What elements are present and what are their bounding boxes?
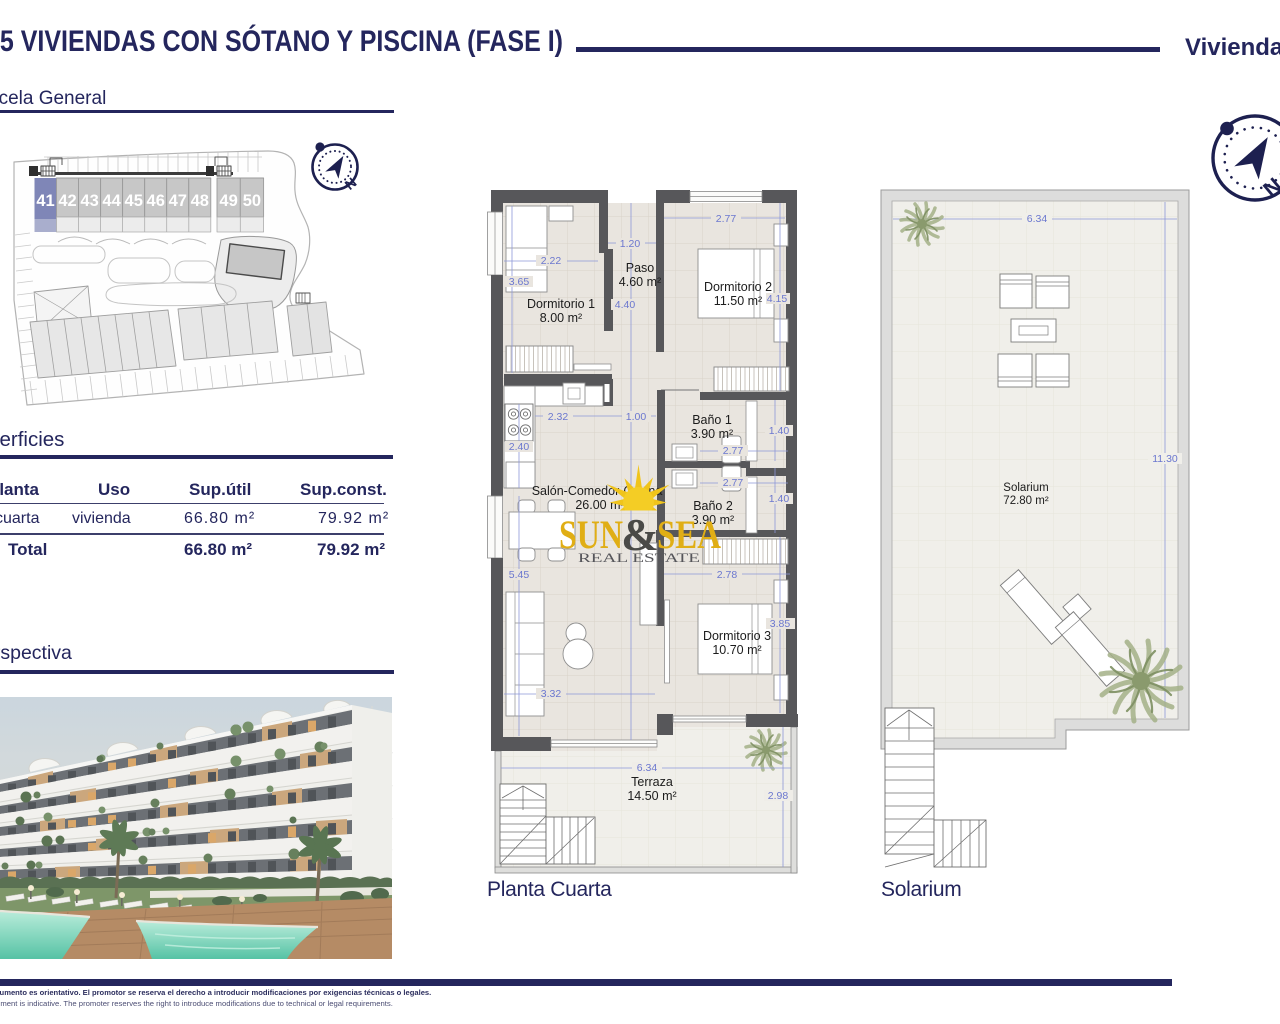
svg-text:44: 44 [102,192,121,210]
svg-text:42: 42 [58,192,76,210]
svg-text:45: 45 [125,192,143,210]
svg-text:2.40: 2.40 [509,441,530,453]
svg-text:2.98: 2.98 [768,790,789,802]
svg-text:Dormitorio 3: Dormitorio 3 [703,629,771,643]
svg-text:3.32: 3.32 [541,688,562,700]
svg-text:1.20: 1.20 [620,238,641,250]
svg-text:8.00 m²: 8.00 m² [540,311,582,325]
svg-text:10.70 m²: 10.70 m² [712,643,761,657]
svg-text:14.50 m²: 14.50 m² [627,789,676,803]
svg-text:47: 47 [169,192,187,210]
svg-text:2.77: 2.77 [723,477,744,489]
svg-text:2.77: 2.77 [723,445,744,457]
svg-text:Dormitorio 2: Dormitorio 2 [704,280,772,294]
svg-text:3.85: 3.85 [770,618,791,630]
svg-text:3.65: 3.65 [509,276,530,288]
svg-text:2.78: 2.78 [717,569,738,581]
svg-text:41: 41 [36,192,54,210]
svg-text:1.00: 1.00 [626,411,647,423]
svg-text:Baño 2: Baño 2 [693,499,733,513]
svg-text:43: 43 [80,192,98,210]
svg-text:6.34: 6.34 [637,762,658,774]
svg-text:6.34: 6.34 [1027,213,1048,225]
svg-text:4.60 m²: 4.60 m² [619,275,661,289]
svg-text:3.90 m²: 3.90 m² [691,427,733,441]
svg-text:1.40: 1.40 [769,425,790,437]
svg-text:11.30: 11.30 [1152,453,1178,465]
svg-text:Baño 1: Baño 1 [692,413,732,427]
svg-text:49: 49 [219,192,237,210]
svg-text:48: 48 [191,192,209,210]
svg-text:72.80 m²: 72.80 m² [1003,495,1049,507]
svg-text:Solarium: Solarium [1003,482,1048,494]
svg-text:Paso: Paso [626,261,655,275]
svg-text:Dormitorio 1: Dormitorio 1 [527,297,595,311]
svg-text:2.32: 2.32 [548,411,569,423]
svg-text:Terraza: Terraza [631,775,673,789]
svg-text:N: N [342,174,360,193]
svg-text:REAL ESTATE: REAL ESTATE [578,550,700,565]
svg-text:26.00 m²: 26.00 m² [575,498,624,512]
svg-text:4.40: 4.40 [615,299,636,311]
svg-text:11.50 m²: 11.50 m² [714,294,762,308]
svg-text:46: 46 [147,192,165,210]
svg-text:5.45: 5.45 [509,569,530,581]
svg-text:1.40: 1.40 [769,493,790,505]
svg-text:2.22: 2.22 [541,255,562,267]
svg-text:2.77: 2.77 [716,213,737,225]
svg-text:50: 50 [243,192,261,210]
svg-text:4.15: 4.15 [767,293,788,305]
